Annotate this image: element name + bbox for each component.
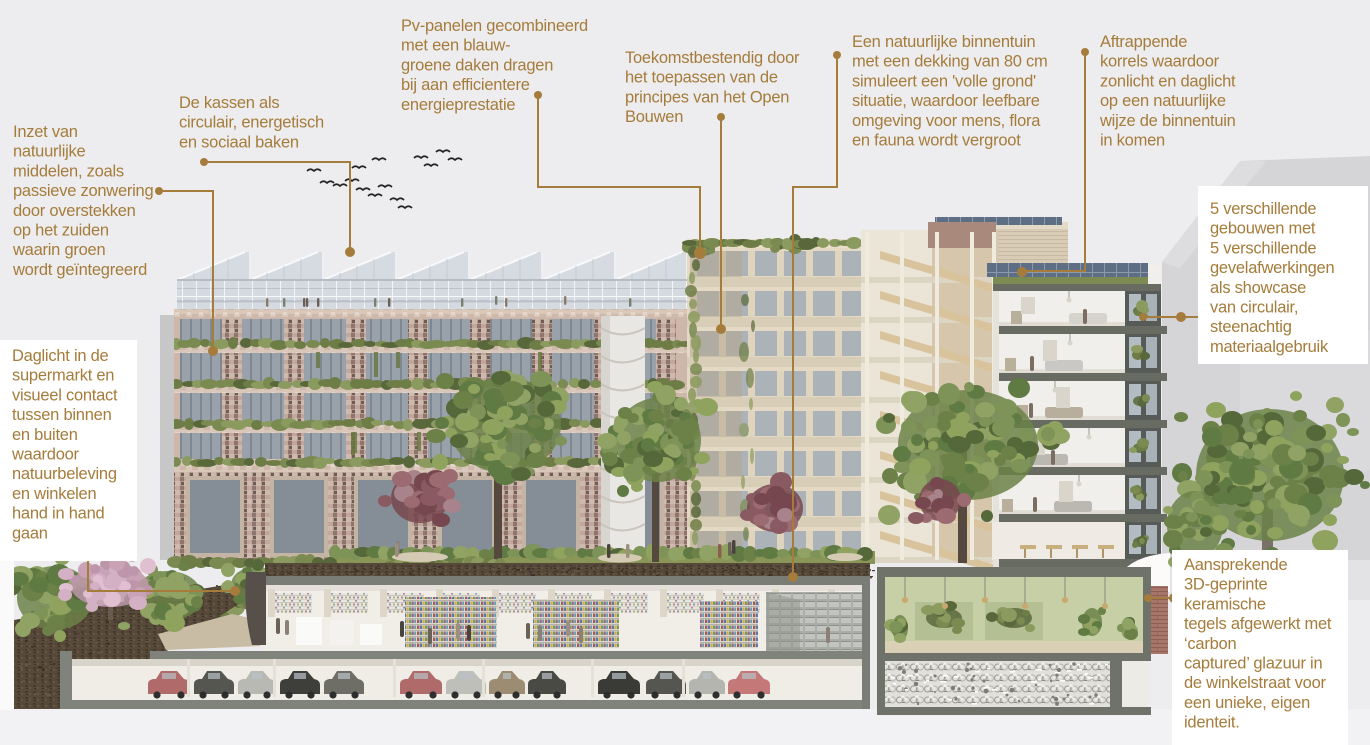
svg-text:Een natuurlijke binnentuinmet: Een natuurlijke binnentuinmet een dekkin… (852, 33, 1048, 150)
